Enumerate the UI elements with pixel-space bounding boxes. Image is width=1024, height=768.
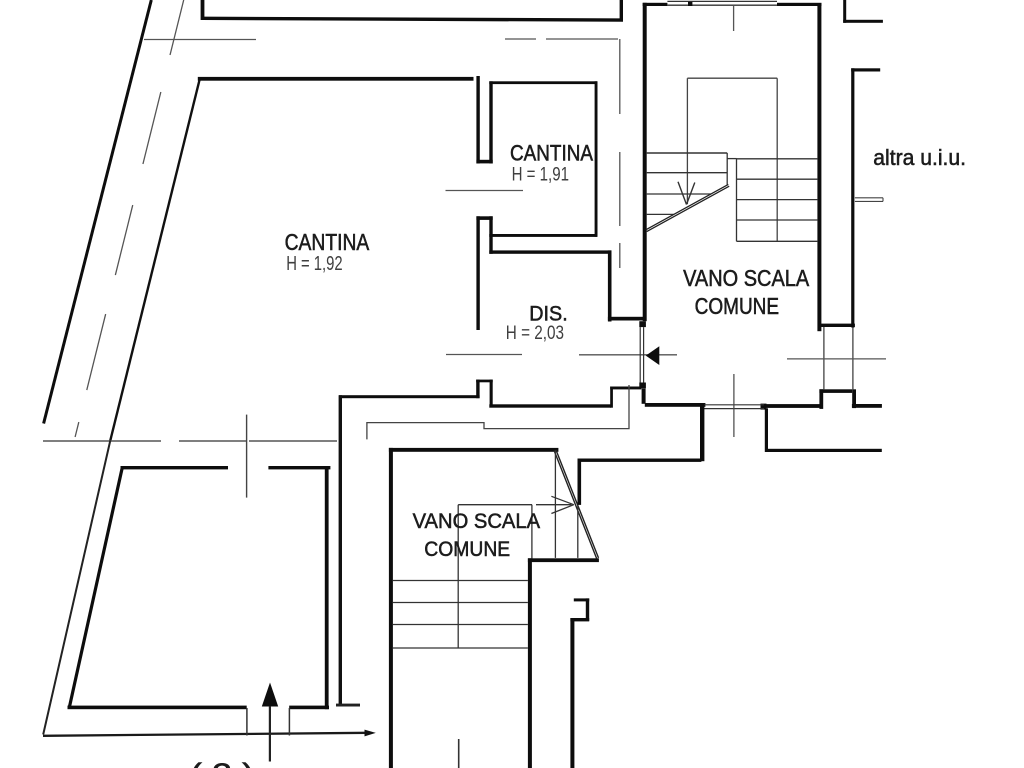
svg-text:H = 2,03: H = 2,03	[506, 322, 564, 344]
svg-text:COMUNE: COMUNE	[424, 537, 510, 561]
svg-text:H = 1,92: H = 1,92	[286, 253, 343, 275]
svg-text:VANO SCALA: VANO SCALA	[683, 265, 810, 291]
svg-text:COMUNE: COMUNE	[695, 293, 780, 319]
svg-text:( 2 ): ( 2 )	[190, 758, 254, 768]
svg-text:CANTINA: CANTINA	[285, 229, 370, 255]
svg-text:VANO SCALA: VANO SCALA	[413, 509, 541, 533]
svg-text:CANTINA: CANTINA	[510, 140, 593, 165]
svg-text:H = 1,91: H = 1,91	[512, 163, 569, 185]
svg-text:altra u.i.u.: altra u.i.u.	[873, 145, 966, 170]
